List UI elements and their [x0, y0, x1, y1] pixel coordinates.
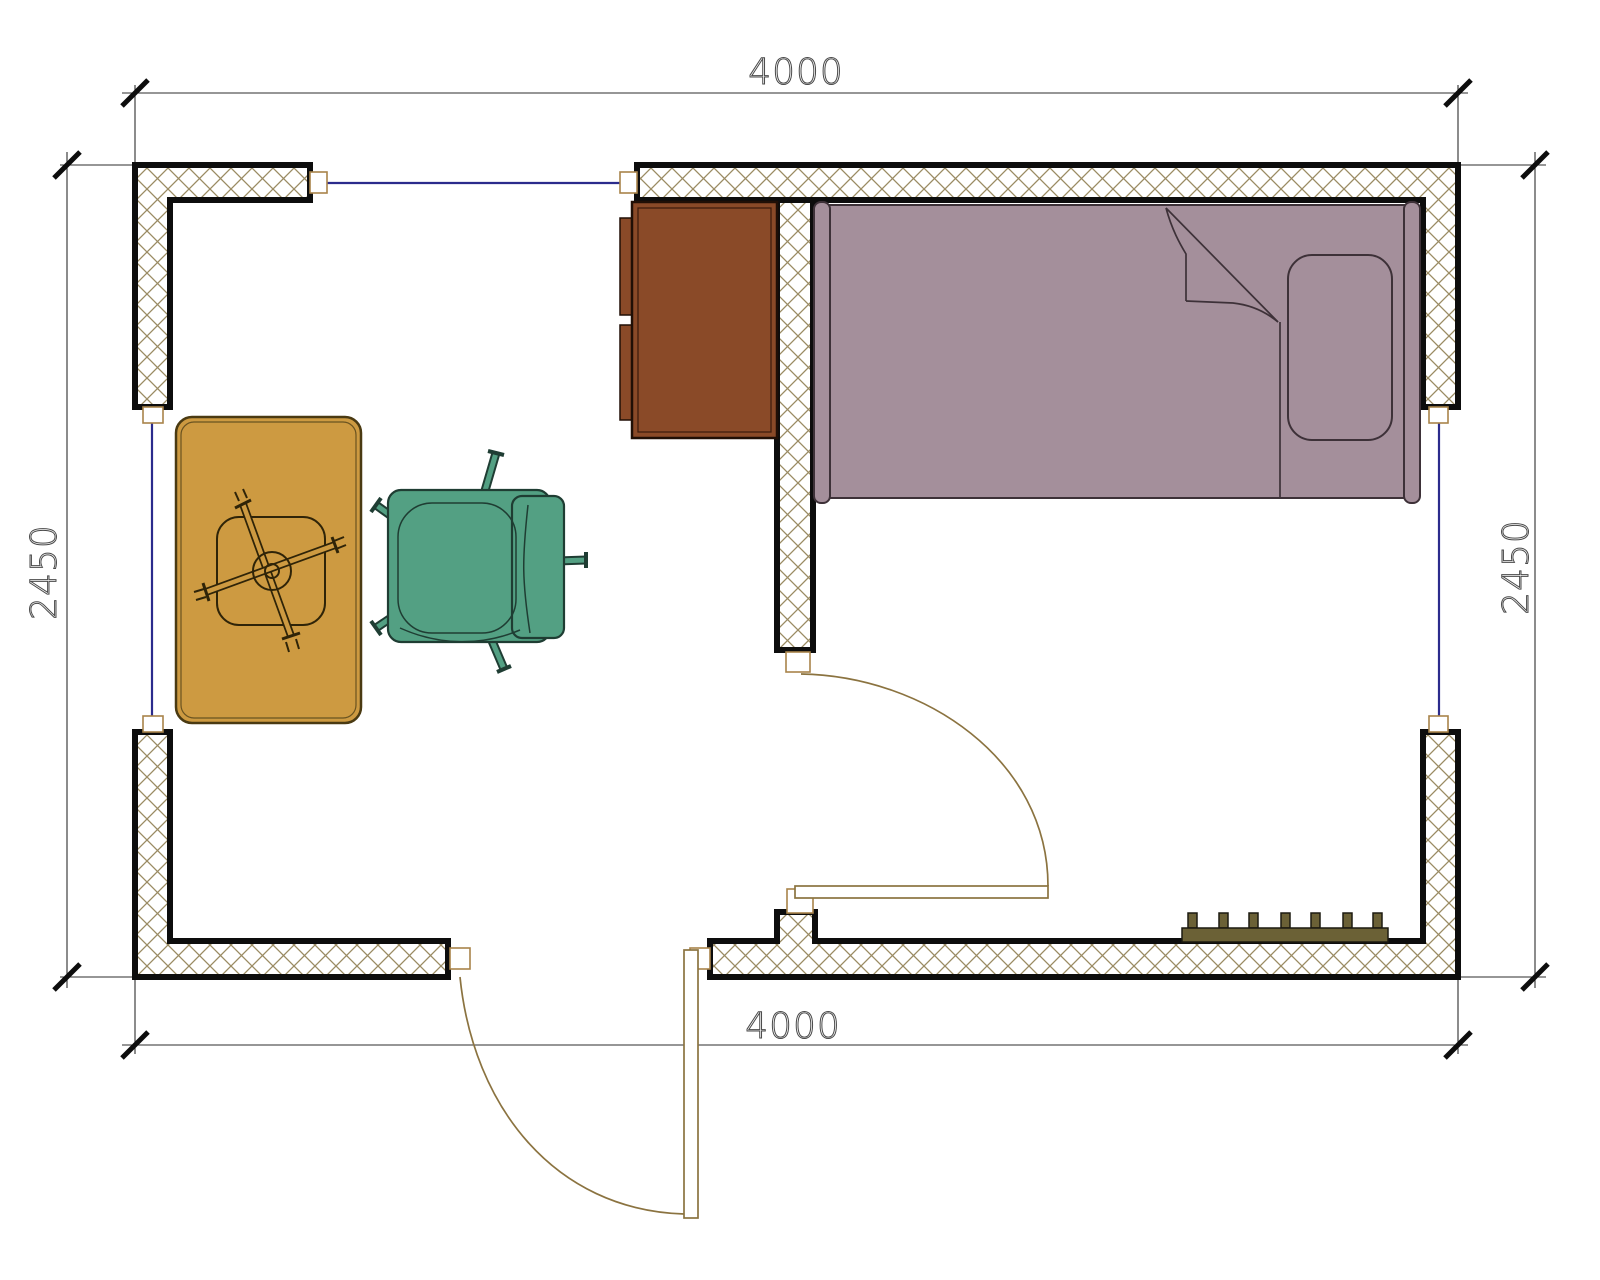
floor-plan-drawing: 4000 4000 2450 2450	[0, 0, 1600, 1280]
bed-headboard	[1404, 202, 1420, 503]
bed	[814, 202, 1420, 503]
dim-label-left: 2450	[24, 524, 65, 620]
wall-bottom-left	[135, 732, 448, 977]
door-leaf	[684, 950, 698, 1218]
dim-label-right: 2450	[1496, 519, 1537, 615]
dim-label-bottom: 4000	[745, 1006, 841, 1047]
radiator-fin	[1343, 913, 1352, 928]
wardrobe-cabinet	[620, 202, 777, 438]
radiator-fin	[1373, 913, 1382, 928]
door-frame-icon	[786, 652, 810, 672]
radiator-fin	[1311, 913, 1320, 928]
floor-plan-canvas: 4000 4000 2450 2450	[0, 0, 1600, 1280]
window-frame-icon	[143, 716, 163, 732]
door-frame-icon	[450, 948, 470, 969]
radiator	[1182, 913, 1388, 942]
cabinet-body	[632, 202, 777, 438]
radiator-fin	[1249, 913, 1258, 928]
radiator-fin	[1188, 913, 1197, 928]
door-swing-arc	[460, 977, 684, 1214]
pillow	[1288, 255, 1392, 440]
radiator-body	[1182, 928, 1388, 942]
office-chair	[371, 451, 586, 672]
interior-door	[786, 652, 1048, 913]
window-top	[310, 172, 637, 193]
window-left	[143, 407, 163, 732]
radiator-fin	[1281, 913, 1290, 928]
chair-backrest	[512, 496, 564, 638]
window-frame-icon	[310, 172, 327, 193]
wall-interior-partition	[777, 200, 813, 650]
radiator-fin	[1219, 913, 1228, 928]
door-swing-arc	[801, 674, 1048, 886]
door-leaf	[795, 886, 1048, 898]
window-frame-icon	[620, 172, 637, 193]
pedestal-table	[176, 417, 361, 723]
entry-door	[450, 948, 710, 1218]
window-frame-icon	[1429, 716, 1448, 732]
wall-top-left	[135, 165, 310, 407]
window-frame-icon	[1429, 407, 1448, 423]
bed-footboard	[814, 202, 830, 503]
window-frame-icon	[143, 407, 163, 423]
dim-label-top: 4000	[748, 52, 844, 93]
window-right	[1429, 407, 1448, 732]
